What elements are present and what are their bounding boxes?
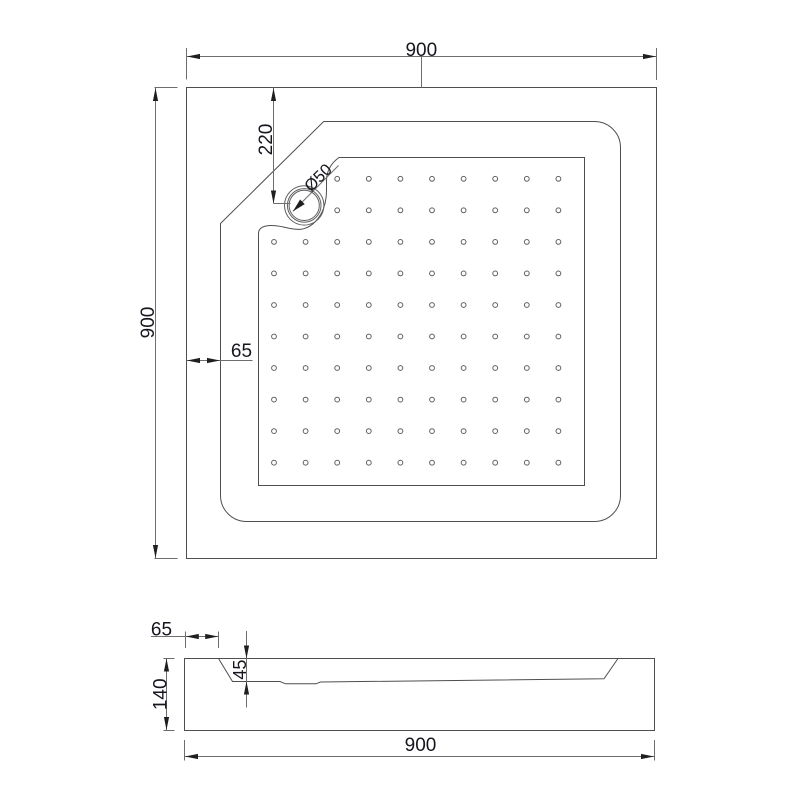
svg-text:140: 140 xyxy=(150,678,171,710)
svg-text:65: 65 xyxy=(231,341,252,362)
svg-text:220: 220 xyxy=(256,124,277,156)
svg-text:900: 900 xyxy=(405,40,437,61)
svg-text:900: 900 xyxy=(405,735,437,756)
svg-text:45: 45 xyxy=(230,660,250,680)
svg-text:65: 65 xyxy=(151,620,172,641)
svg-text:900: 900 xyxy=(138,307,159,339)
